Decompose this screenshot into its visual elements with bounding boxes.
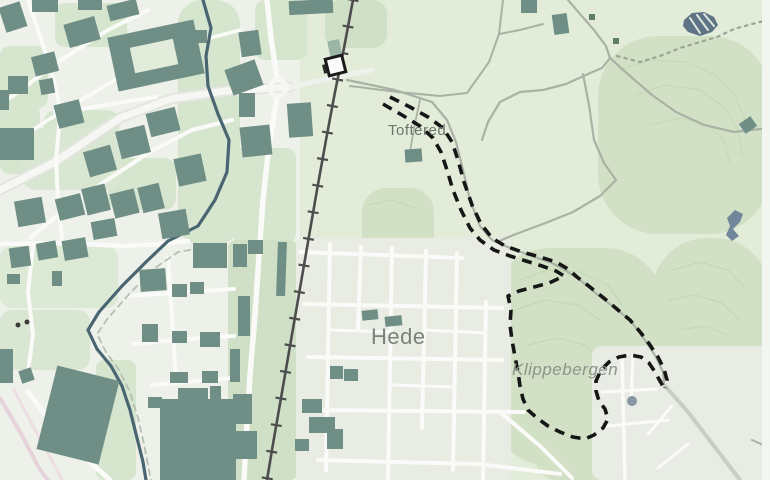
- map-edge: [762, 0, 770, 480]
- map-viewport[interactable]: Toftered Hede Klippebergen: [0, 0, 770, 480]
- map-canvas[interactable]: [0, 0, 770, 480]
